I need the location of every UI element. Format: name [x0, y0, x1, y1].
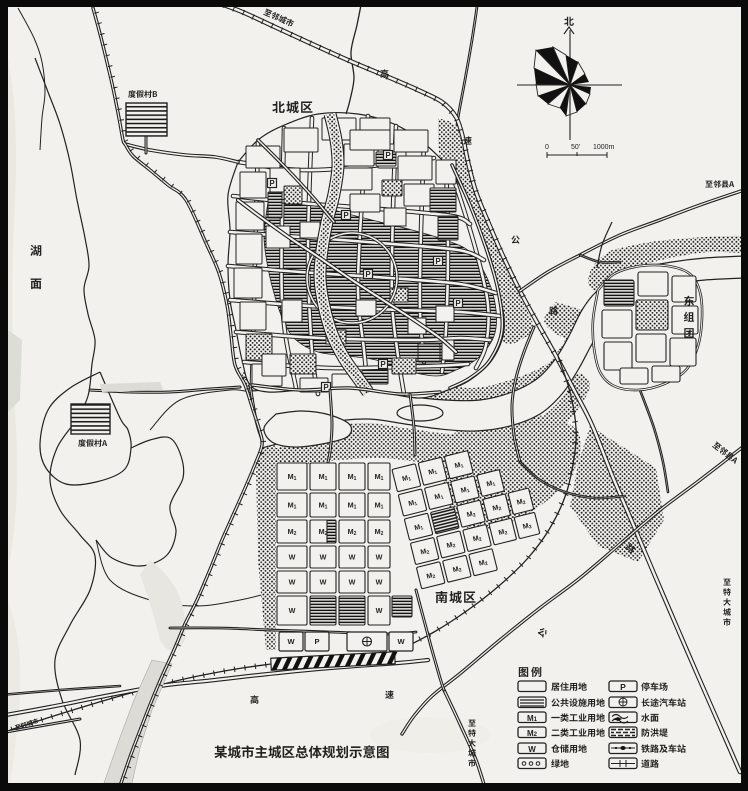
svg-text:W: W	[320, 578, 327, 587]
svg-text:W: W	[376, 578, 383, 587]
svg-text:P: P	[343, 211, 349, 220]
svg-text:P: P	[323, 383, 329, 392]
svg-text:1000m: 1000m	[593, 144, 615, 151]
svg-text:W: W	[376, 553, 383, 562]
svg-text:W: W	[528, 745, 536, 754]
svg-text:W: W	[397, 637, 405, 646]
svg-text:P: P	[314, 637, 319, 646]
svg-text:50': 50'	[571, 144, 580, 151]
svg-text:0: 0	[545, 144, 549, 151]
svg-text:W: W	[349, 578, 356, 587]
svg-text:P: P	[455, 299, 461, 308]
svg-text:P: P	[385, 151, 391, 160]
svg-text:W: W	[289, 606, 296, 615]
svg-text:P: P	[435, 257, 441, 266]
svg-text:P: P	[269, 179, 275, 188]
svg-text:W: W	[289, 553, 296, 562]
svg-text:W: W	[320, 553, 327, 562]
svg-text:P: P	[380, 360, 386, 369]
svg-text:P: P	[620, 682, 626, 692]
svg-text:W: W	[289, 578, 296, 587]
svg-text:P: P	[365, 270, 371, 279]
svg-text:W: W	[376, 606, 383, 615]
svg-text:W: W	[349, 553, 356, 562]
svg-text:W: W	[287, 637, 295, 646]
